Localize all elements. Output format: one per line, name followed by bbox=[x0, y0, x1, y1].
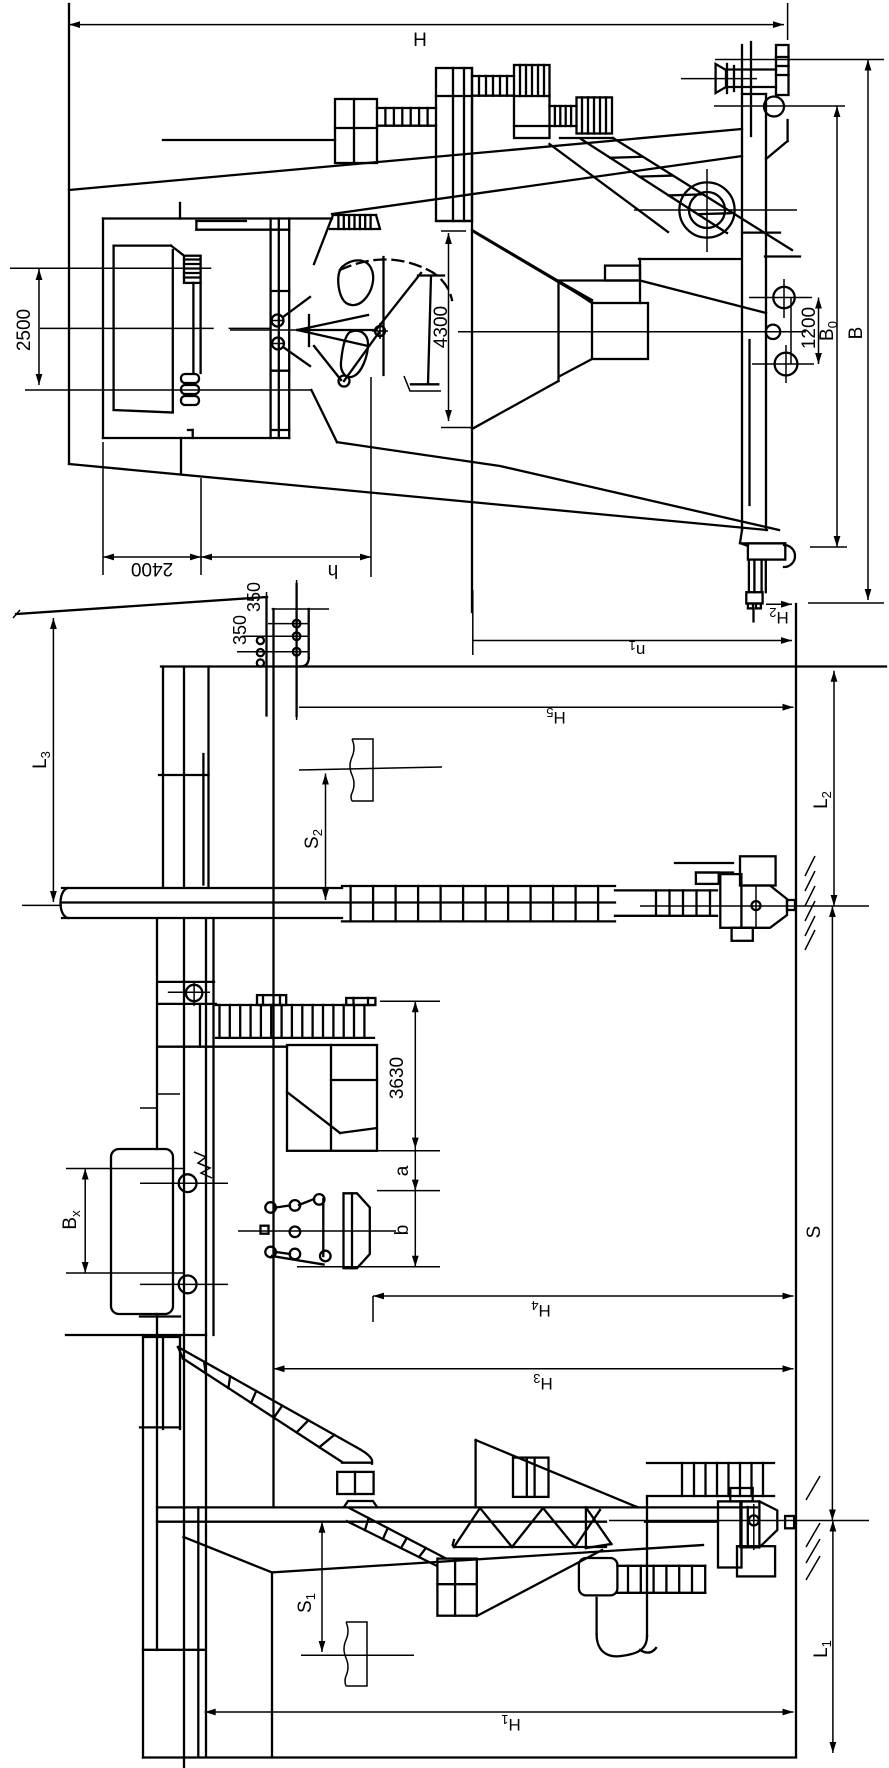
svg-text:2500: 2500 bbox=[14, 309, 35, 351]
svg-text:B: B bbox=[846, 327, 867, 340]
svg-text:350: 350 bbox=[244, 582, 264, 612]
svg-text:2400: 2400 bbox=[131, 558, 173, 579]
svg-text:h: h bbox=[328, 560, 339, 581]
svg-text:H: H bbox=[413, 30, 427, 51]
svg-text:a: a bbox=[392, 1165, 413, 1176]
svg-text:3630: 3630 bbox=[387, 1057, 408, 1099]
svg-text:1200: 1200 bbox=[799, 307, 820, 349]
svg-text:350: 350 bbox=[230, 615, 250, 645]
svg-text:4300: 4300 bbox=[431, 306, 452, 348]
svg-text:b: b bbox=[392, 1225, 413, 1236]
svg-text:S: S bbox=[804, 1226, 825, 1239]
